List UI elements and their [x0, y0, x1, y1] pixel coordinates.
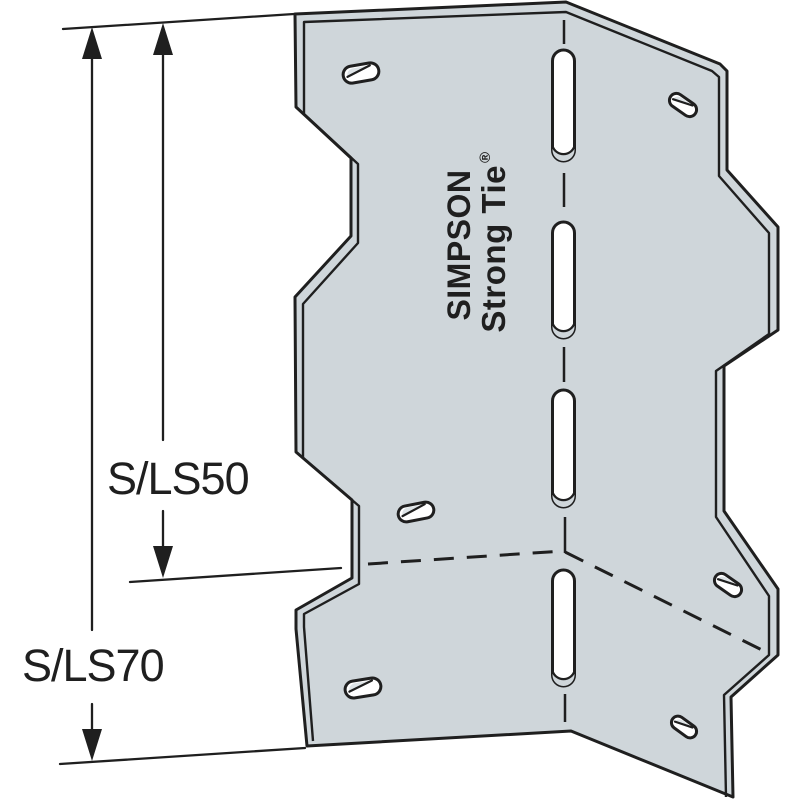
angle-bracket-drawing: SIMPSON Strong Tie® S/LS50 S/LS70	[0, 0, 800, 800]
arrowhead-up	[153, 23, 173, 55]
slot-opening	[553, 50, 575, 161]
dimension-sls70: S/LS70	[22, 27, 164, 761]
center-slot-2	[553, 222, 575, 338]
dimension-sls50: S/LS50	[107, 23, 249, 578]
brand-stamp: SIMPSON Strong Tie®	[441, 151, 512, 332]
extension-line-bottom	[60, 748, 305, 764]
dimensions: S/LS50 S/LS70	[22, 14, 341, 764]
center-slot-1	[553, 50, 575, 161]
bracket-illustration: SIMPSON Strong Tie®	[295, 2, 778, 797]
brand-strong-tie: Strong Tie®	[475, 151, 512, 332]
brand-simpson: SIMPSON	[441, 169, 477, 320]
label-sls70: S/LS70	[22, 640, 164, 691]
center-slot-3	[553, 390, 575, 507]
slot-opening	[553, 390, 575, 507]
label-sls50: S/LS50	[107, 453, 249, 504]
extension-line-top	[63, 14, 294, 29]
arrowhead-up	[82, 27, 102, 59]
brand-strong-tie-text: Strong Tie	[475, 165, 512, 333]
center-slot-4	[553, 570, 575, 686]
slot-opening	[553, 222, 575, 338]
product-diagram: SIMPSON Strong Tie® S/LS50 S/LS70	[0, 0, 800, 800]
slot-opening	[553, 570, 575, 686]
arrowhead-down	[82, 729, 102, 761]
registered-mark: ®	[477, 151, 494, 163]
arrowhead-down	[153, 546, 173, 578]
